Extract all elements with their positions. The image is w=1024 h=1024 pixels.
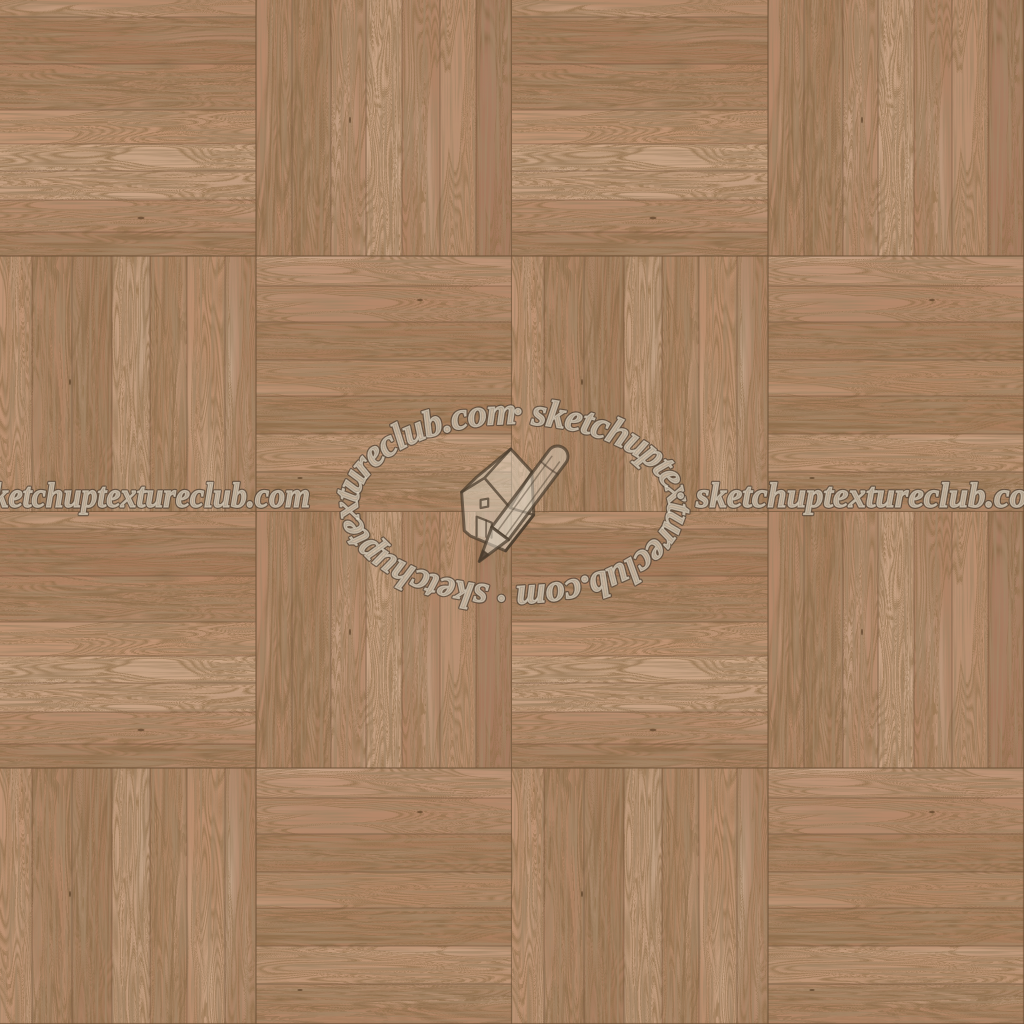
svg-text:·: · (676, 476, 685, 515)
svg-text:sketchuptextureclub.com: sketchuptextureclub.com (695, 476, 1024, 515)
svg-text:sketchuptextureclub.com: sketchuptextureclub.com (0, 476, 310, 515)
